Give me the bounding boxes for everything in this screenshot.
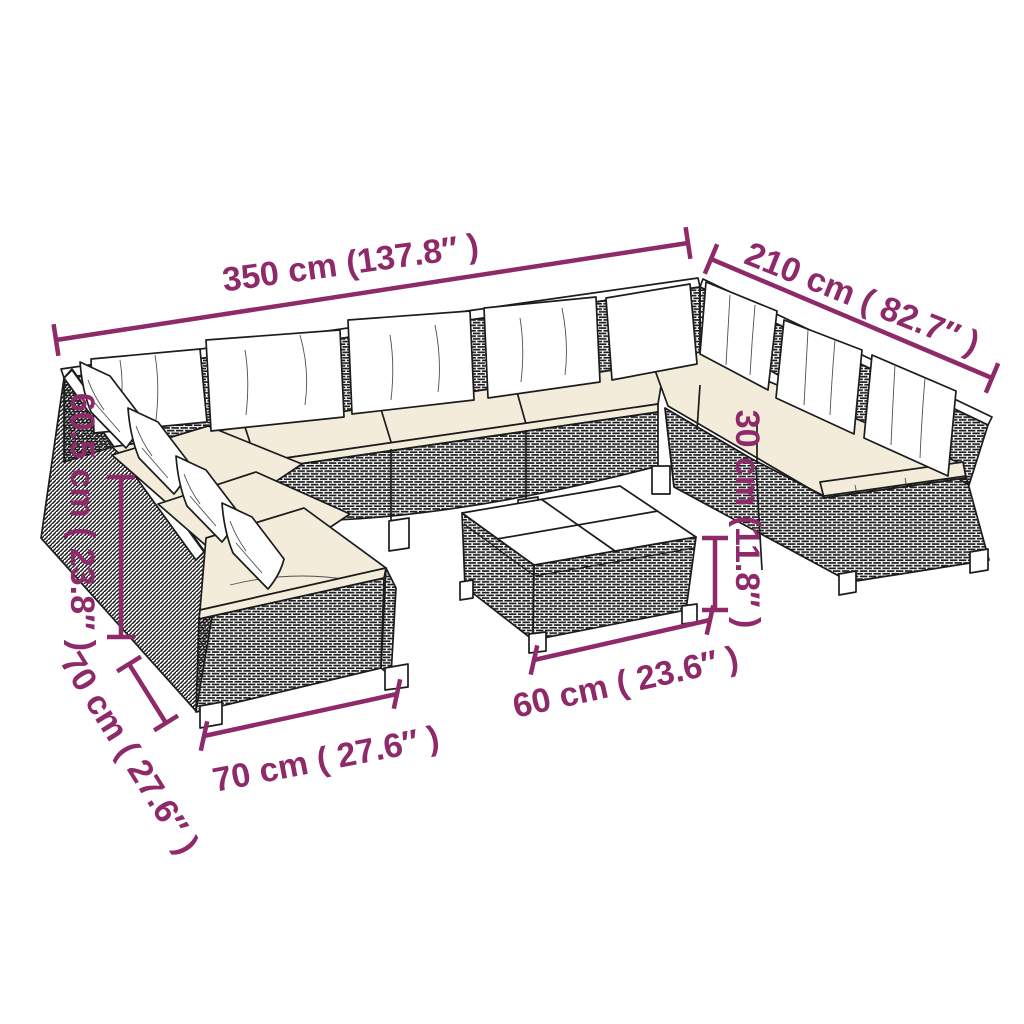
svg-text:60.5 cm ( 23.8″ ): 60.5 cm ( 23.8″ ) bbox=[63, 393, 101, 651]
svg-text:30 cm (11.8″ ): 30 cm (11.8″ ) bbox=[728, 410, 766, 629]
